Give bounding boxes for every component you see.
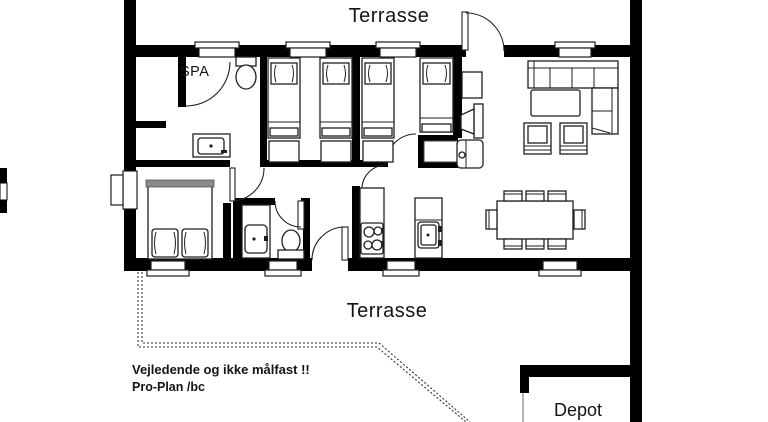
chair-icon xyxy=(526,191,544,201)
armchair-icon xyxy=(524,123,551,154)
sink-icon xyxy=(242,205,270,258)
coffee-table-icon xyxy=(531,90,580,116)
chair-icon xyxy=(504,191,522,201)
chair-icon xyxy=(526,239,544,249)
bedroom-divider-1 xyxy=(260,57,267,167)
chimney-icon xyxy=(418,135,458,168)
disclaimer-line1: Vejledende og ikke målfast !! xyxy=(132,362,310,377)
depot-top-wall xyxy=(520,365,630,377)
door-swing-icon xyxy=(230,168,264,201)
bathroom-west-wall xyxy=(233,198,242,258)
depot-left-wall-stub xyxy=(520,365,529,393)
door-swing-icon xyxy=(462,12,504,57)
left-wall xyxy=(124,0,136,271)
window-icon xyxy=(147,261,189,276)
floorplan-drawing: Terrasse Terrasse SPA Depot Vejledende o… xyxy=(0,0,768,422)
chair-icon xyxy=(504,239,522,249)
master-bedroom-east-wall xyxy=(223,203,231,258)
wood-stove-icon xyxy=(457,140,483,168)
floorplan-canvas: Terrasse Terrasse SPA Depot Vejledende o… xyxy=(0,0,768,422)
terrace-dotted-boundary xyxy=(138,272,470,422)
sink-icon xyxy=(415,198,442,258)
chair-icon xyxy=(486,210,497,229)
tv-icon xyxy=(461,104,483,138)
door-swing-icon xyxy=(312,227,348,271)
tv-bench-icon xyxy=(462,72,482,98)
right-wall xyxy=(630,0,642,422)
toilet-icon xyxy=(278,230,304,259)
door-swing-icon xyxy=(275,201,304,229)
kitchen-wall-stub xyxy=(352,186,360,258)
single-bed-icon xyxy=(420,58,453,132)
chair-icon xyxy=(548,191,566,201)
window-icon xyxy=(265,261,301,276)
door-swing-icon xyxy=(362,165,386,189)
disclaimer-line2: Pro-Plan /bc xyxy=(132,380,205,394)
hall-wall-west xyxy=(136,160,230,167)
window-icon xyxy=(383,261,419,276)
window-icon xyxy=(111,171,137,209)
chair-icon xyxy=(574,210,585,229)
cooktop-icon xyxy=(360,188,384,258)
depot-room-label: Depot xyxy=(554,400,602,420)
single-bed-icon xyxy=(362,58,394,162)
bedroom-divider-2 xyxy=(352,57,360,167)
armchair-icon xyxy=(560,123,587,154)
double-bed-icon xyxy=(146,180,214,259)
chair-icon xyxy=(548,239,566,249)
entry-wall-stub xyxy=(136,121,166,128)
toilet-icon xyxy=(236,57,256,89)
terrace-bottom-label: Terrasse xyxy=(347,300,428,322)
window-icon xyxy=(195,42,239,57)
window-icon xyxy=(555,42,595,57)
bathroom-top-wall xyxy=(233,198,275,205)
furniture xyxy=(146,57,618,259)
dining-table-icon xyxy=(497,201,573,239)
single-bed-icon xyxy=(268,58,300,162)
terrace-top-label: Terrasse xyxy=(349,5,430,27)
window-icon xyxy=(539,261,581,276)
single-bed-icon xyxy=(320,58,352,162)
edge-artifact xyxy=(0,168,7,213)
spa-room-label: SPA xyxy=(180,64,209,80)
window-icon xyxy=(376,42,420,57)
window-icon xyxy=(286,42,330,57)
washbasin-icon xyxy=(193,134,230,157)
